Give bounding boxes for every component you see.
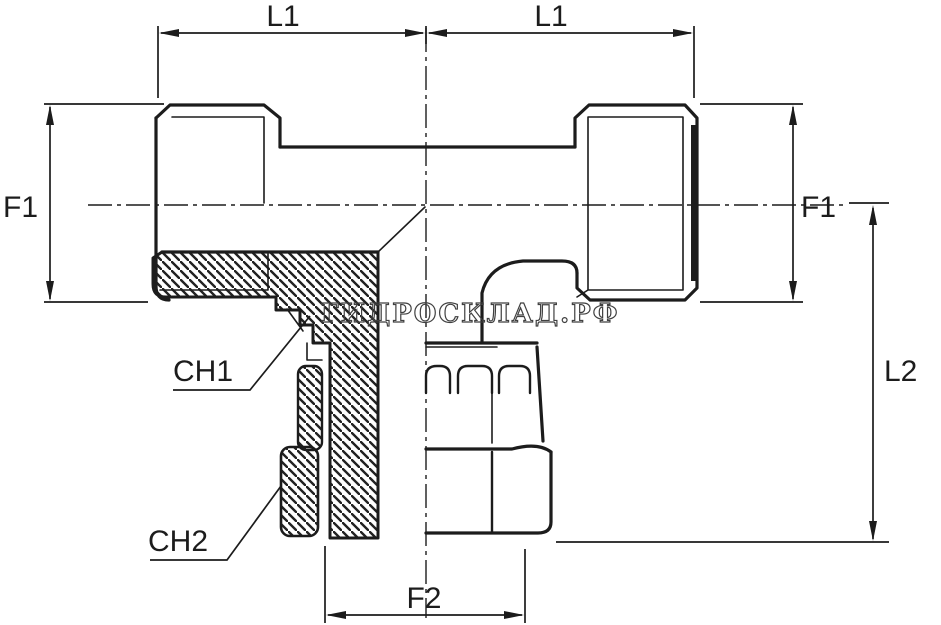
dim-f1-right: F1	[700, 104, 836, 302]
dim-label-f1-left: F1	[3, 191, 38, 224]
section-break-line	[378, 207, 425, 252]
arrowhead	[673, 29, 693, 37]
nut-section	[281, 343, 322, 536]
dim-f2: F2	[325, 546, 525, 623]
arrowhead	[789, 105, 797, 125]
arrowhead	[504, 611, 524, 619]
left-stud-outline	[156, 105, 280, 147]
nut-section-wall	[281, 447, 318, 536]
right-thread-minor	[577, 117, 683, 297]
dim-l1-left: L1	[158, 0, 426, 98]
right-stud-outline	[575, 105, 697, 300]
dim-label-f2: F2	[406, 582, 441, 615]
dim-label-l1-left: L1	[266, 0, 299, 33]
dim-f1-left: F1	[3, 104, 164, 302]
tee-fitting-drawing: L1 L1 F1 F1 L2 F2	[0, 0, 941, 625]
arrowhead	[46, 281, 54, 301]
hex-corner-arc-2	[458, 366, 492, 393]
right-male-thread	[575, 105, 698, 300]
swivel-nut-outline	[426, 343, 551, 533]
collar-side-taper	[537, 347, 543, 441]
arrowhead	[427, 29, 447, 37]
callout-ch1: CH1	[173, 316, 310, 390]
arrowhead	[869, 521, 877, 541]
left-thread-minor	[172, 117, 264, 203]
callout-label-ch1: CH1	[173, 355, 233, 388]
dim-l2: L2	[556, 203, 917, 542]
technical-drawing-canvas: L1 L1 F1 F1 L2 F2	[0, 0, 941, 625]
thread-end-face-bar	[691, 125, 698, 281]
callout-label-ch2: CH2	[148, 525, 208, 558]
hex-corner-arc-1	[426, 366, 450, 393]
dim-label-l1-right: L1	[534, 0, 567, 33]
dim-label-l2: L2	[884, 355, 917, 388]
dim-l1-right: L1	[427, 0, 694, 98]
ferrule-section	[298, 366, 322, 450]
nut-top-edge	[426, 446, 551, 452]
body-section-hatch	[153, 252, 378, 538]
hex-corner-arc-3	[499, 366, 530, 393]
arrowhead	[869, 205, 877, 225]
ext-lines	[700, 104, 803, 302]
arrowhead	[789, 281, 797, 301]
nut-step-lines	[307, 343, 322, 360]
arrowhead	[159, 29, 179, 37]
arrowhead	[46, 105, 54, 125]
watermark-text: ГИДРОСКЛАД.РФ	[321, 299, 620, 329]
arrowhead	[326, 611, 346, 619]
arrowhead	[405, 29, 425, 37]
dim-label-f1-right: F1	[801, 191, 836, 224]
callout-ch2: CH2	[148, 486, 281, 560]
nut-body-edge	[426, 452, 551, 533]
ext-lines	[44, 104, 164, 302]
